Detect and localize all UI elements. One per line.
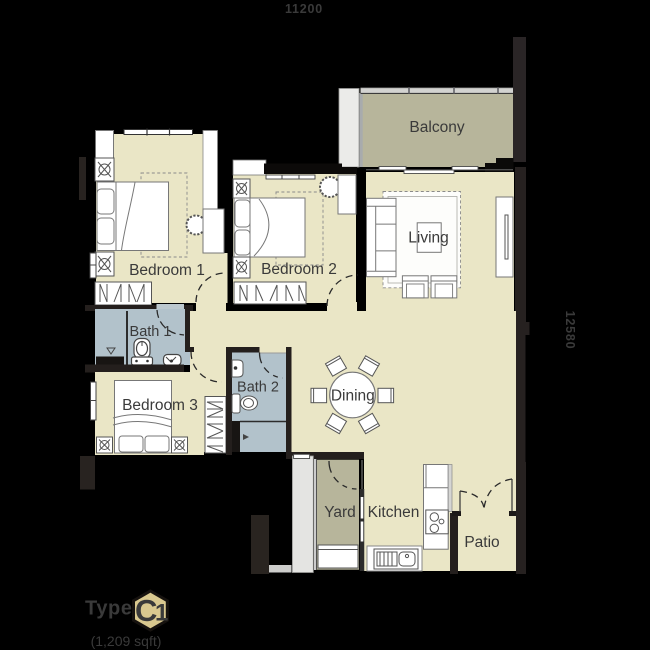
svg-text:11200: 11200 bbox=[285, 2, 323, 16]
svg-text:Living: Living bbox=[408, 230, 449, 247]
svg-text:12580: 12580 bbox=[563, 311, 577, 350]
svg-text:Bedroom 1: Bedroom 1 bbox=[129, 262, 205, 279]
svg-text:Bedroom 3: Bedroom 3 bbox=[122, 397, 198, 414]
svg-text:Balcony: Balcony bbox=[409, 119, 464, 136]
svg-text:Kitchen: Kitchen bbox=[368, 504, 420, 521]
svg-text:Bath 2: Bath 2 bbox=[237, 380, 279, 396]
svg-text:Bath 1: Bath 1 bbox=[130, 324, 172, 340]
svg-text:Type: Type bbox=[85, 598, 133, 620]
svg-text:Yard: Yard bbox=[324, 504, 356, 521]
svg-text:(1,209 sqft): (1,209 sqft) bbox=[91, 633, 162, 649]
svg-text:Dining: Dining bbox=[331, 388, 375, 405]
svg-text:1: 1 bbox=[155, 600, 168, 627]
svg-text:Patio: Patio bbox=[464, 534, 499, 551]
svg-text:Bedroom 2: Bedroom 2 bbox=[261, 261, 337, 278]
